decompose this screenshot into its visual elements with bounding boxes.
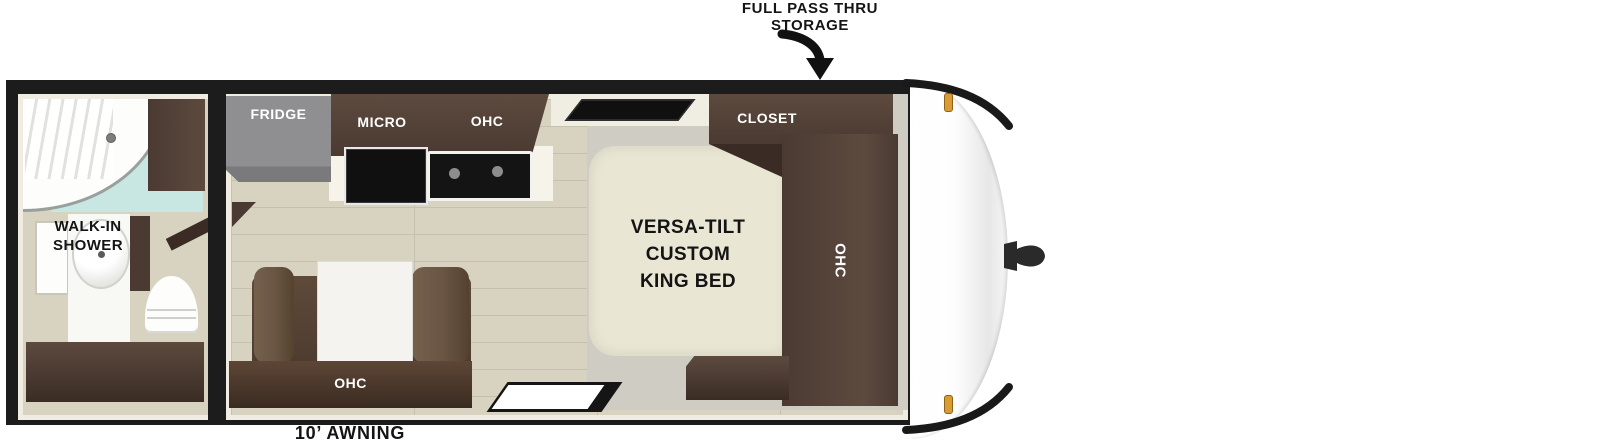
front-cap-trim: [890, 70, 1060, 443]
closet-label: CLOSET: [725, 110, 809, 126]
king-bed: VERSA-TILT CUSTOM KING BED: [589, 146, 787, 356]
fridge-label: FRIDGE: [226, 106, 331, 122]
bathroom-counter: [26, 342, 204, 402]
dinette-ohc-label: OHC: [229, 375, 472, 391]
marker-light-bottom: [944, 395, 953, 414]
marker-light-top: [944, 93, 953, 112]
bathroom-wall: [208, 80, 226, 425]
awning-label: 10’ AWNING: [255, 423, 445, 443]
pass-thru-storage-line1: FULL PASS THRU: [710, 0, 910, 17]
bathroom-cabinet: [148, 99, 205, 191]
hitch-coupler-icon: [1004, 241, 1045, 271]
fridge: FRIDGE: [226, 96, 331, 182]
corner-shelf: [232, 202, 256, 227]
bedroom-ohc-label: OHC: [832, 203, 849, 319]
foot-of-bed-cabinet: [686, 356, 789, 400]
king-bed-label: VERSA-TILT CUSTOM KING BED: [589, 214, 787, 295]
kitchen-ohc-label: OHC: [457, 113, 517, 129]
sofa-armrest-right: [412, 267, 469, 363]
roof-vent: [564, 99, 695, 121]
micro-label: MICRO: [349, 114, 415, 130]
cap-trim-top: [906, 83, 1009, 126]
bed-label-line3: KING BED: [589, 268, 787, 295]
dinette-table: [317, 261, 413, 365]
bathroom-section: WALK-IN SHOWER: [18, 94, 218, 420]
walk-in-shower-label: WALK-IN SHOWER: [25, 217, 151, 255]
cap-trim-bottom: [906, 387, 1009, 430]
kitchen-sink: [427, 151, 533, 201]
bed-label-line2: CUSTOM: [589, 241, 787, 268]
stove: [344, 147, 428, 205]
sofa-armrest-left: [254, 267, 294, 363]
trailer-body: WALK-IN SHOWER FRIDGE MICRO OHC: [6, 80, 910, 425]
main-section: FRIDGE MICRO OHC VERSA-TILT CUSTOM KING …: [226, 94, 908, 420]
shower-drain-icon: [106, 133, 116, 143]
dinette-overhead-cabinet: OHC: [229, 361, 472, 408]
sink-drain-icon: [492, 166, 503, 177]
entry-door: [486, 382, 622, 412]
shower-door-pleats: [25, 99, 113, 179]
toilet-seam: [147, 309, 196, 319]
toilet: [145, 276, 198, 333]
bedroom-overhead-cabinet: OHC: [782, 134, 898, 406]
storage-arrow-icon: [770, 26, 850, 84]
sink-drain-icon: [449, 168, 460, 179]
bed-label-line1: VERSA-TILT: [589, 214, 787, 241]
floorplan-canvas: FULL PASS THRU STORAGE WALK-IN SHOWER: [0, 0, 1600, 443]
